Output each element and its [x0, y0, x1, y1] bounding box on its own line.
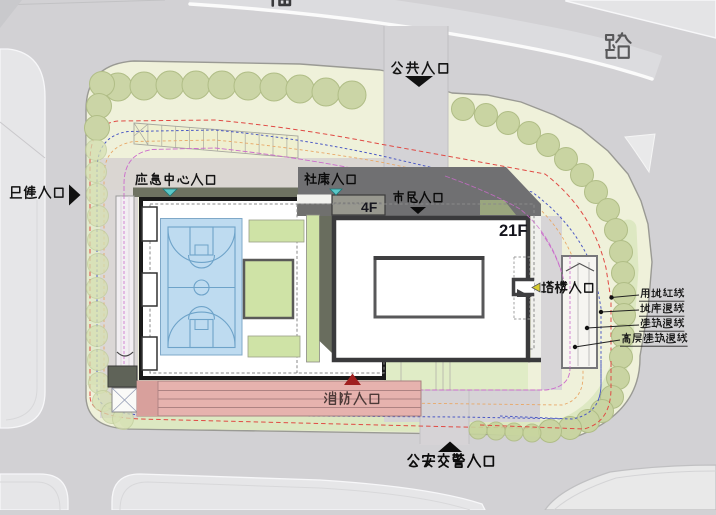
svg-text:4F: 4F: [361, 199, 378, 215]
svg-text:21F: 21F: [499, 222, 527, 240]
